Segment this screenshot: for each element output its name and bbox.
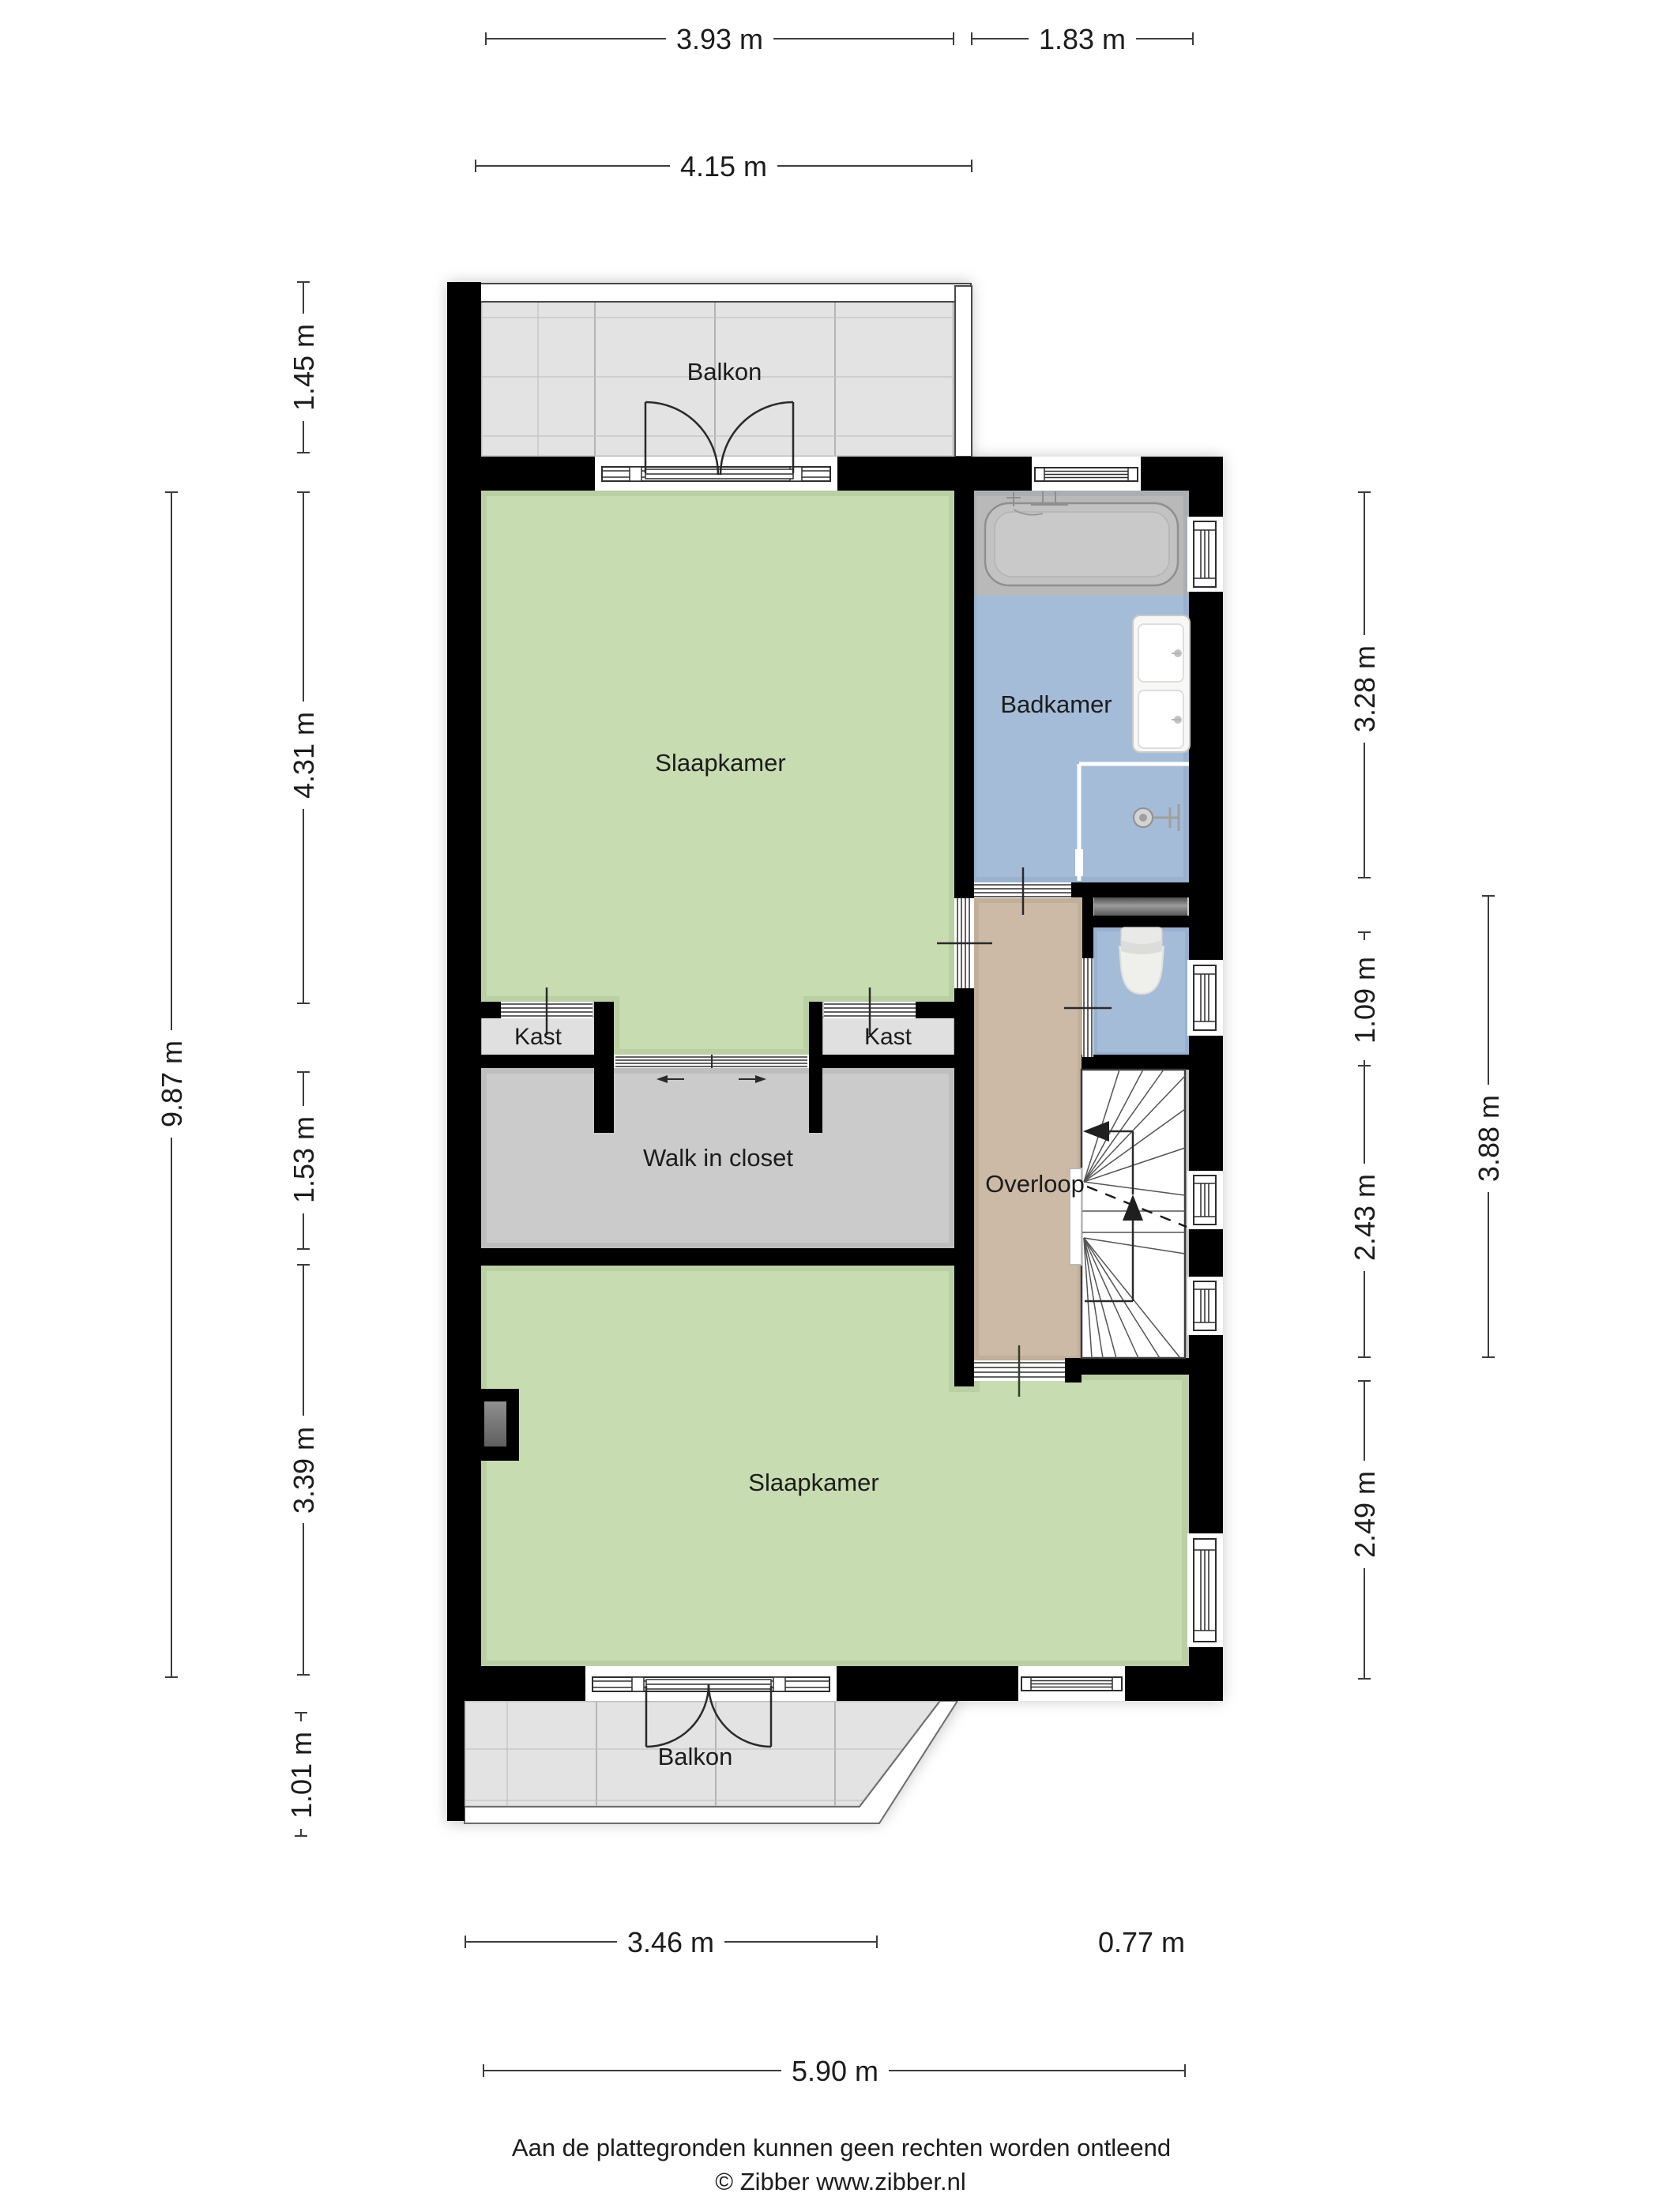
svg-text:Slaapkamer: Slaapkamer — [655, 749, 785, 777]
svg-text:1.01 m: 1.01 m — [285, 1732, 318, 1819]
svg-text:1.09 m: 1.09 m — [1349, 957, 1381, 1044]
svg-text:Slaapkamer: Slaapkamer — [748, 1469, 878, 1496]
svg-text:Badkamer: Badkamer — [1000, 690, 1112, 718]
svg-text:1.45 m: 1.45 m — [288, 324, 320, 411]
svg-text:3.88 m: 3.88 m — [1473, 1095, 1505, 1182]
svg-text:4.15 m: 4.15 m — [680, 150, 767, 182]
svg-text:3.46 m: 3.46 m — [627, 1926, 714, 1958]
svg-text:© Zibber www.zibber.nl: © Zibber www.zibber.nl — [715, 2168, 965, 2195]
svg-text:Walk in closet: Walk in closet — [643, 1144, 793, 1172]
svg-text:2.49 m: 2.49 m — [1349, 1471, 1381, 1558]
svg-text:0.77 m: 0.77 m — [1098, 1926, 1185, 1958]
svg-text:1.83 m: 1.83 m — [1039, 23, 1126, 55]
svg-text:3.28 m: 3.28 m — [1349, 645, 1381, 732]
svg-text:Balkon: Balkon — [658, 1743, 733, 1770]
svg-text:9.87 m: 9.87 m — [156, 1040, 188, 1127]
svg-text:Overloop: Overloop — [985, 1170, 1085, 1198]
svg-text:3.93 m: 3.93 m — [676, 23, 763, 55]
svg-text:2.43 m: 2.43 m — [1349, 1174, 1381, 1261]
svg-text:Aan de plattegronden kunnen ge: Aan de plattegronden kunnen geen rechten… — [512, 2134, 1171, 2161]
svg-text:4.31 m: 4.31 m — [288, 712, 320, 799]
svg-text:3.39 m: 3.39 m — [288, 1427, 320, 1514]
svg-text:Balkon: Balkon — [687, 358, 762, 386]
svg-text:5.90 m: 5.90 m — [792, 2055, 878, 2087]
svg-text:Kast: Kast — [864, 1024, 912, 1050]
svg-text:Kast: Kast — [514, 1024, 562, 1050]
svg-text:1.53 m: 1.53 m — [288, 1116, 320, 1203]
